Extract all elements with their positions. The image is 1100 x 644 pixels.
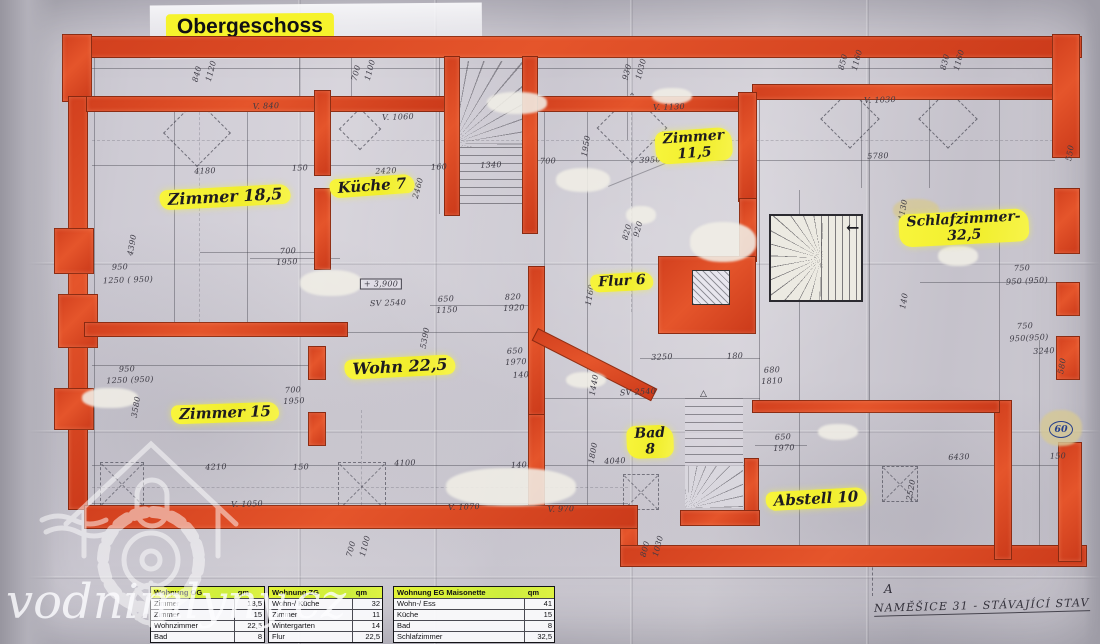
dimension-label: 700 (345, 540, 358, 558)
paper-crease (0, 262, 1100, 265)
dimension-label: 1950 (580, 135, 593, 158)
dimension-label: 650 (507, 346, 524, 356)
dimension-label: 1150 (436, 305, 458, 315)
dimension-label: 950 (112, 262, 128, 272)
dimension-label: 700 (540, 156, 556, 166)
dimension-label: 1250 (950) (106, 375, 154, 386)
table-cell-room: Zimmer (151, 610, 234, 620)
pencil-line (247, 100, 248, 332)
dimension-label: 4100 (394, 458, 416, 468)
pencil-line (92, 68, 1058, 69)
room-label: Abstell 10 (765, 487, 866, 511)
table-cell-area: 15 (234, 610, 264, 620)
dimension-label: 3250 (651, 352, 673, 362)
table-row: Bad8 (151, 631, 264, 642)
dimension-label: 180 (727, 351, 744, 361)
dimension-label: 150 (292, 163, 308, 173)
staircase-spiral-fan (771, 216, 823, 300)
area-table: Wohnung OGqmZimmer18,5Zimmer15Wohnzimmer… (150, 586, 265, 643)
area-table: Wohnung ZGqmWohn-/ Küche32Zimmer11Winter… (268, 586, 383, 643)
table-cell-area: 8 (524, 621, 554, 631)
wall-segment (752, 400, 1000, 413)
pencil-line (608, 162, 668, 187)
whiteout-patch (690, 222, 756, 262)
dimension-label: SV 2540 (620, 387, 657, 398)
dimension-label: V. 840 (253, 101, 280, 111)
staircase-top-treads (450, 147, 532, 211)
wall-segment (84, 322, 348, 337)
dimension-label: V. 1050 (231, 499, 263, 509)
dimension-label: 6430 (948, 452, 970, 462)
table-cell-room: Küche (394, 610, 524, 620)
table-cell-area: 32,5 (524, 632, 554, 642)
dimension-label: 5390 (419, 327, 432, 350)
paper-crease (0, 430, 1100, 433)
wall-segment (314, 188, 331, 270)
dimension-label: + 3,900 (360, 279, 402, 290)
dimension-label: 1970 (505, 357, 527, 367)
wall-segment (308, 412, 326, 446)
wall-segment (522, 56, 538, 234)
pencil-line (92, 140, 1058, 141)
whiteout-patch (818, 424, 858, 440)
table-row: Flur22,5 (269, 631, 382, 642)
table-cell-room: Bad (394, 621, 524, 631)
dimension-label: 1950 (283, 396, 305, 406)
dimension-label: 1970 (773, 443, 795, 453)
floorplan-photo: ← △ Obergeschoss Zimmer 18,5Küche 7Zimme… (0, 0, 1100, 644)
table-header: Wohnung EG Maisonetteqm (394, 587, 554, 598)
staircase-bottom (685, 398, 743, 508)
dimension-label: 4390 (126, 234, 139, 257)
table-row: Zimmer11 (269, 609, 382, 620)
chimney-flue-hatch (692, 270, 730, 305)
roof-window-diamond (339, 108, 381, 150)
dimension-label: 550 (1064, 144, 1076, 161)
table-header: Wohnung OGqm (151, 587, 264, 598)
dimension-label: 950(950) (1009, 332, 1049, 343)
dimension-label: 140 (511, 460, 527, 470)
circled-note: 60 (1049, 421, 1073, 438)
table-cell-area: 14 (352, 621, 382, 631)
stair-direction-arrow-icon: ← (846, 218, 859, 237)
table-row: Bad8 (394, 620, 554, 631)
wall-segment (308, 346, 326, 380)
table-cell-room: Schlafzimmer (394, 632, 524, 642)
table-cell-room: Wohn-/ Küche (269, 599, 352, 609)
dimension-label: V. 1070 (448, 502, 480, 512)
wall-segment (738, 92, 757, 202)
table-unit: qm (238, 588, 261, 597)
dimension-label: 650 (775, 432, 792, 442)
stair-triangle-mark: △ (700, 389, 707, 399)
table-cell-room: Flur (269, 632, 352, 642)
table-cell-room: Bad (151, 632, 234, 642)
table-unit: qm (528, 588, 551, 597)
staircase-bottom-winder (685, 466, 743, 508)
table-row: Küche15 (394, 609, 554, 620)
table-title: Wohnung EG Maisonette (397, 588, 486, 597)
table-row: Zimmer18,5 (151, 598, 264, 609)
dimension-label: 1030 (634, 57, 648, 80)
dimension-label: 140 (513, 370, 530, 380)
pencil-line (92, 465, 1072, 466)
wall-segment (58, 294, 98, 348)
table-row: Schlafzimmer32,5 (394, 631, 554, 642)
room-label: Flur 6 (590, 272, 654, 293)
dimension-label: 750 (1014, 263, 1031, 273)
whiteout-patch (82, 388, 138, 408)
pencil-line (1039, 340, 1040, 560)
table-row: Wohn-/ Küche32 (269, 598, 382, 609)
dimension-label: V. 970 (548, 504, 575, 514)
pencil-line (346, 332, 528, 333)
wall-segment (86, 36, 1082, 58)
dimension-label: 4180 (194, 166, 216, 176)
dimension-label: 700 (285, 385, 302, 395)
wall-segment (534, 96, 754, 112)
whiteout-patch (446, 468, 576, 506)
pencil-line (535, 160, 1055, 161)
pencil-line (759, 84, 760, 400)
dimension-label: 4210 (205, 462, 227, 472)
dimension-label: 950 (950) (1006, 275, 1048, 286)
drawing-caption: NAMĚŠICE 31 - STÁVAJÍCÍ STAV (874, 596, 1090, 617)
pencil-line (439, 40, 440, 214)
dimension-label: SV 2540 (370, 298, 407, 308)
wall-segment (994, 400, 1012, 560)
table-cell-area: 11 (352, 610, 382, 620)
room-label: Schlafzimmer- 32,5 (898, 208, 1030, 248)
dimension-label: 5780 (867, 151, 889, 161)
room-label: Küche 7 (329, 174, 415, 199)
table-cell-room: Zimmer (269, 610, 352, 620)
section-letter: A (884, 582, 893, 596)
wall-segment (1054, 188, 1080, 254)
room-label: Bad 8 (626, 425, 674, 460)
wall-segment (62, 34, 92, 102)
paper-crease (0, 576, 1100, 579)
table-cell-room: Wohn-/ Ess (394, 599, 524, 609)
dimension-label: V. 1060 (382, 112, 414, 122)
dimension-label: 1100 (363, 58, 377, 81)
table-row: Wintergarten14 (269, 620, 382, 631)
dimension-label: V. 1030 (864, 95, 896, 105)
area-table: Wohnung EG MaisonetteqmWohn-/ Ess41Küche… (393, 586, 555, 643)
dimension-label: 150 (1050, 451, 1066, 461)
table-row: Wohn-/ Ess41 (394, 598, 554, 609)
whiteout-patch (487, 92, 547, 114)
wall-segment (1056, 282, 1080, 316)
dimension-label: 820 (505, 292, 522, 302)
dimension-label: 650 (438, 294, 455, 304)
wall-segment (752, 84, 1064, 100)
dimension-label: 680 (764, 365, 781, 375)
dimension-label: 1340 (480, 160, 502, 170)
dimension-label: 750 (1017, 321, 1034, 331)
dimension-label: V. 1130 (653, 102, 685, 112)
dimension-label: 4040 (604, 456, 626, 466)
dimension-label: 150 (293, 462, 309, 472)
roof-window-square (100, 462, 144, 506)
photo-left-edge (0, 0, 56, 644)
dimension-label: 700 (280, 246, 297, 256)
roof-window-square (338, 462, 386, 510)
whiteout-patch (556, 168, 610, 192)
dimension-label: 1100 (358, 534, 372, 557)
dimension-label: 1800 (587, 442, 600, 465)
wall-segment (54, 228, 94, 274)
table-cell-area: 41 (524, 599, 554, 609)
table-cell-area: 32 (352, 599, 382, 609)
table-cell-area: 8 (234, 632, 264, 642)
table-cell-area: 22,5 (352, 632, 382, 642)
table-header: Wohnung ZGqm (269, 587, 382, 598)
table-cell-room: Wohnzimmer (151, 621, 234, 631)
wall-segment (1052, 34, 1080, 158)
table-cell-area: 15 (524, 610, 554, 620)
dimension-label: 3240 (1033, 346, 1055, 356)
table-row: Zimmer15 (151, 609, 264, 620)
room-label: Wohn 22,5 (344, 354, 456, 380)
room-label: Zimmer 15 (171, 402, 280, 425)
dimension-label: 950 (119, 364, 135, 374)
table-title: Wohnung ZG (272, 588, 319, 597)
whiteout-patch (938, 246, 978, 266)
dimension-label: 140 (898, 292, 910, 309)
table-title: Wohnung OG (154, 588, 202, 597)
wall-segment (314, 90, 331, 176)
table-unit: qm (356, 588, 379, 597)
dimension-label: 1810 (761, 376, 783, 386)
dimension-label: 1120 (204, 59, 218, 82)
dimension-label: 1250 ( 950) (103, 275, 154, 286)
wall-segment (620, 545, 1087, 567)
pencil-line (200, 252, 320, 253)
dimension-label: 1920 (503, 303, 525, 313)
dimension-label: 160 (431, 162, 448, 172)
whiteout-patch (300, 270, 362, 296)
table-cell-room: Zimmer (151, 599, 234, 609)
dimension-label: 1950 (276, 257, 298, 267)
wall-segment (444, 56, 460, 216)
table-cell-area: 18,5 (234, 599, 264, 609)
wall-segment (680, 510, 760, 526)
table-cell-room: Wintergarten (269, 621, 352, 631)
room-label: Zimmer 18,5 (159, 184, 291, 211)
table-cell-area: 22,5 (234, 621, 264, 631)
room-label: Zimmer 11,5 (654, 127, 734, 166)
table-row: Wohnzimmer22,5 (151, 620, 264, 631)
